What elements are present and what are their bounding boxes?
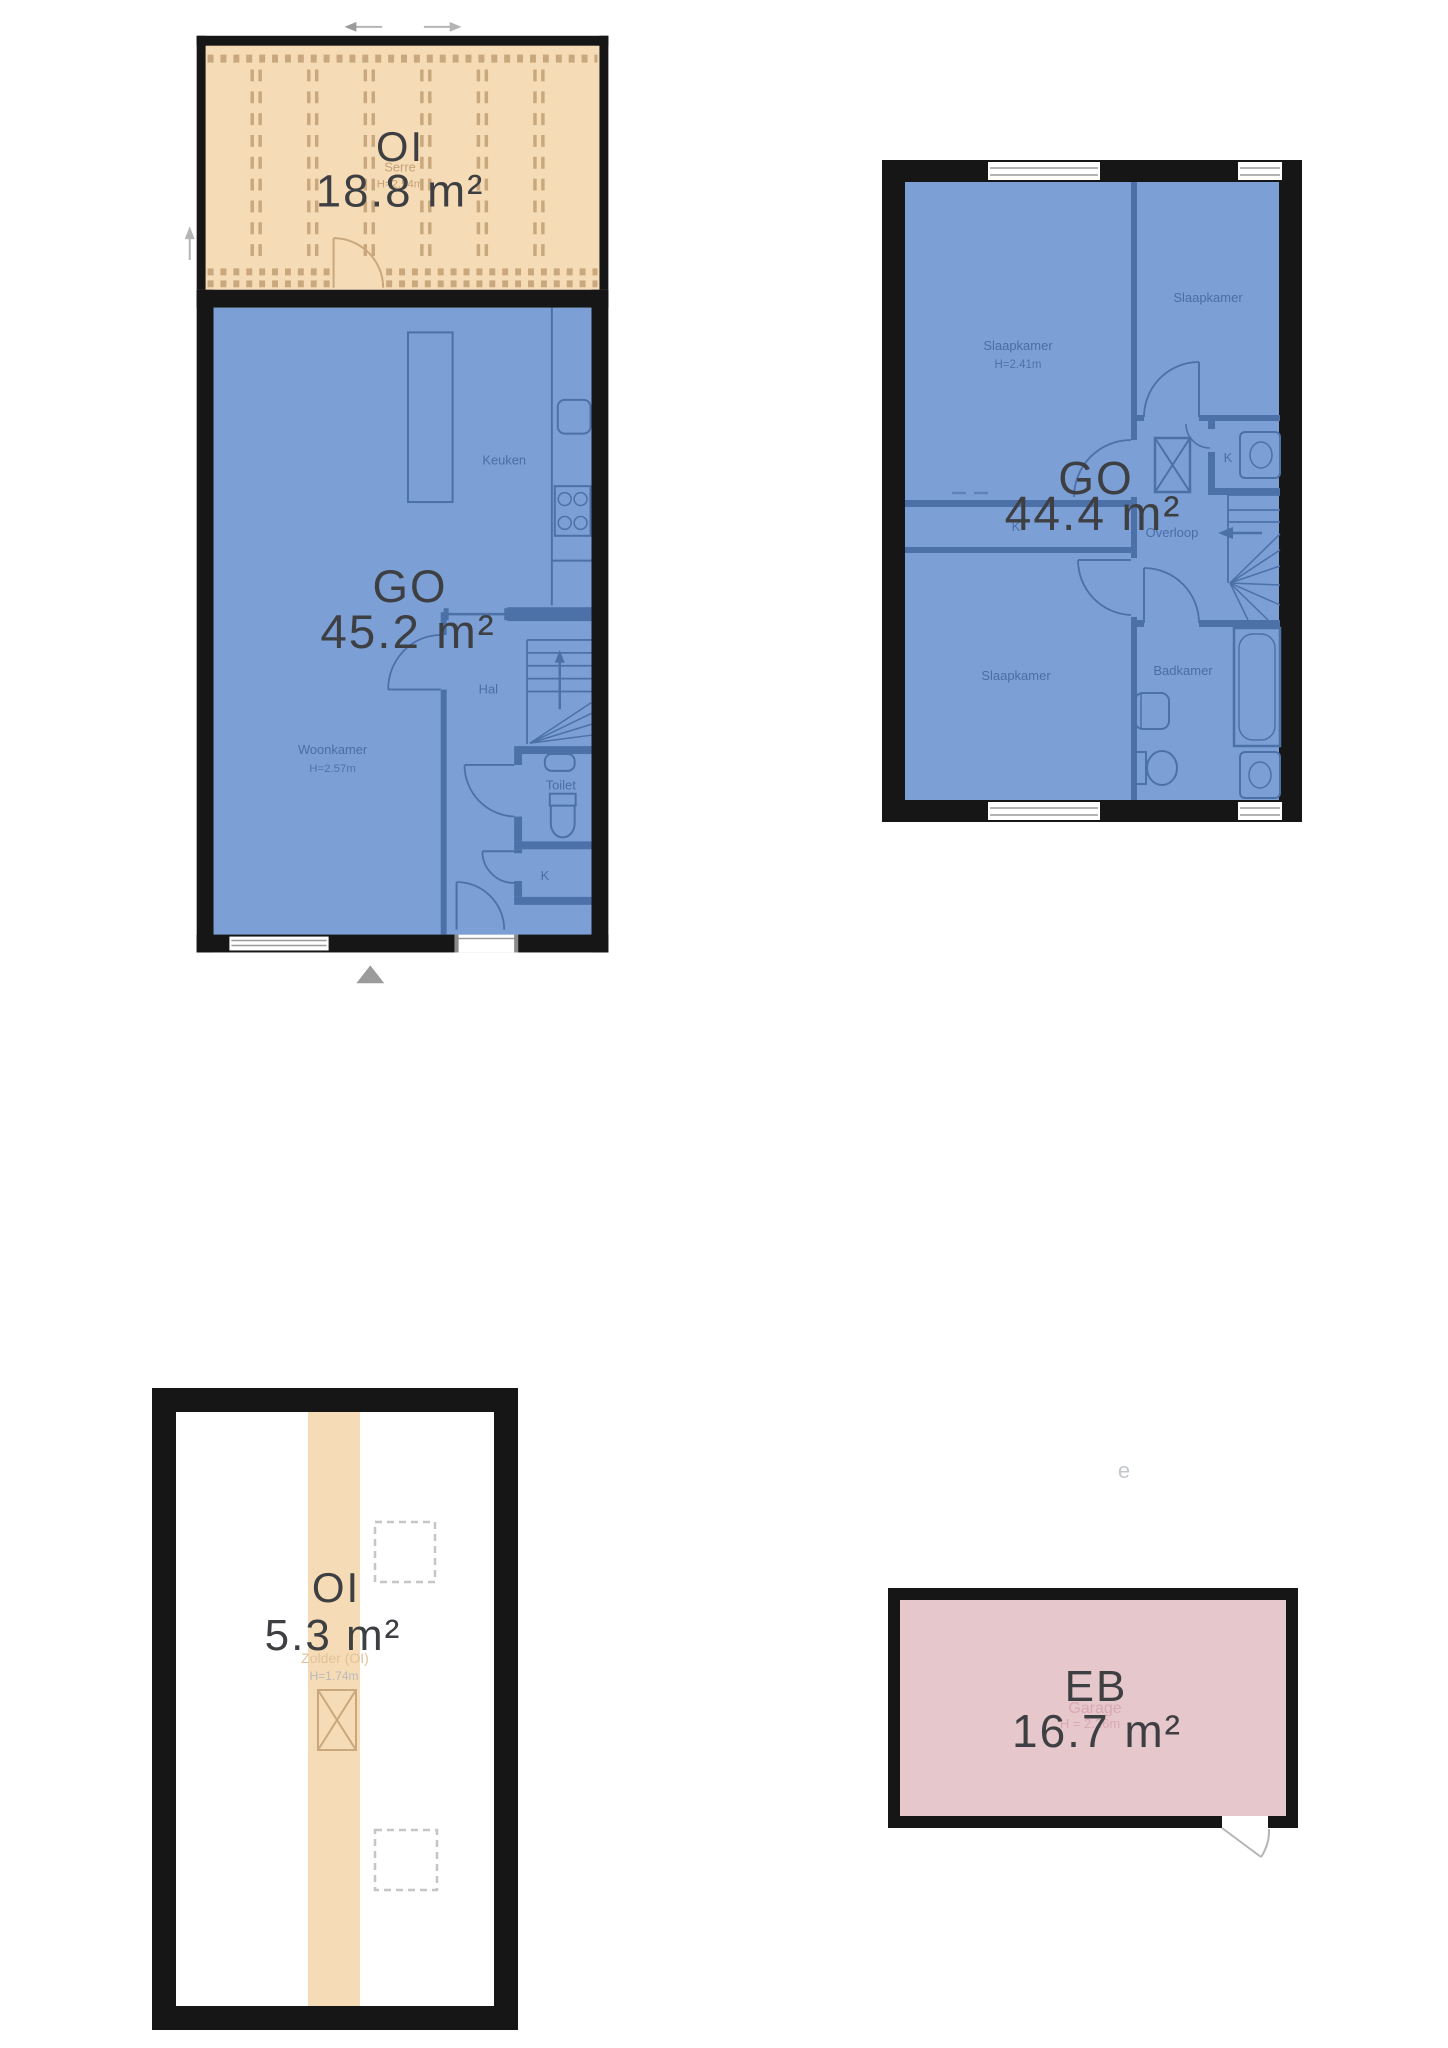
serre-room: Serre H=2.54m OI 18.8 m² (197, 36, 609, 290)
slaapkamer-bottom-label: Slaapkamer (981, 668, 1051, 683)
slaapkamer-left-label: Slaapkamer (983, 338, 1053, 353)
attic-area-code: OI (312, 1564, 360, 1611)
go-area-value: 45.2 m² (320, 606, 495, 659)
slaapkamer-right-label: Slaapkamer (1173, 290, 1243, 305)
entrance-triangle-icon (356, 965, 384, 983)
window (229, 937, 328, 951)
garage-door-opening (1222, 1816, 1268, 1828)
serre-area-code: OI (376, 123, 424, 170)
window (988, 162, 1100, 180)
slaapkamer-left-height-label: H=2.41m (995, 359, 1042, 371)
slide-arrow-left-icon (344, 22, 382, 32)
door-arc (1222, 1828, 1269, 1857)
ground-floor-plan: Serre H=2.54m OI 18.8 m² (180, 8, 630, 1008)
go1-area-value: 44.4 m² (1005, 488, 1182, 541)
slide-arrow-right-icon (424, 22, 462, 32)
toilet-label: Toilet (546, 778, 576, 793)
attic-area-value: 5.3 m² (265, 1611, 402, 1660)
go-area-code: GO (372, 561, 447, 612)
serre-area-value: 18.8 m² (316, 165, 485, 216)
attic-headroom-band (308, 1412, 360, 2006)
zolder-height-label: H=1.74m (309, 1669, 358, 1683)
woonkamer-label: Woonkamer (298, 742, 368, 757)
attic-structure (152, 1388, 518, 2030)
window (1238, 802, 1282, 820)
badkamer-label: Badkamer (1153, 663, 1213, 678)
garage-plan: e Garage H = 2.26m EB 16.7 m² (875, 1425, 1320, 1885)
garage-area-code: EB (1065, 1662, 1128, 1711)
north-arrow-icon (185, 226, 195, 260)
keuken-label: Keuken (482, 452, 526, 467)
stray-text: e (1118, 1458, 1130, 1483)
closet-right-label: K (1224, 450, 1233, 465)
entrance-opening (455, 935, 518, 953)
window (988, 802, 1100, 820)
attic-plan: Zolder (OI) H=1.74m OI 5.3 m² (145, 1380, 525, 2040)
first-floor-plan: Slaapkamer H=2.41m Slaapkamer K K Overlo… (875, 150, 1315, 845)
garage-area-value: 16.7 m² (1012, 1705, 1182, 1757)
hal-label: Hal (479, 682, 498, 697)
window (1238, 162, 1282, 180)
woonkamer-height-label: H=2.57m (309, 763, 356, 775)
closet-label: K (541, 868, 550, 883)
